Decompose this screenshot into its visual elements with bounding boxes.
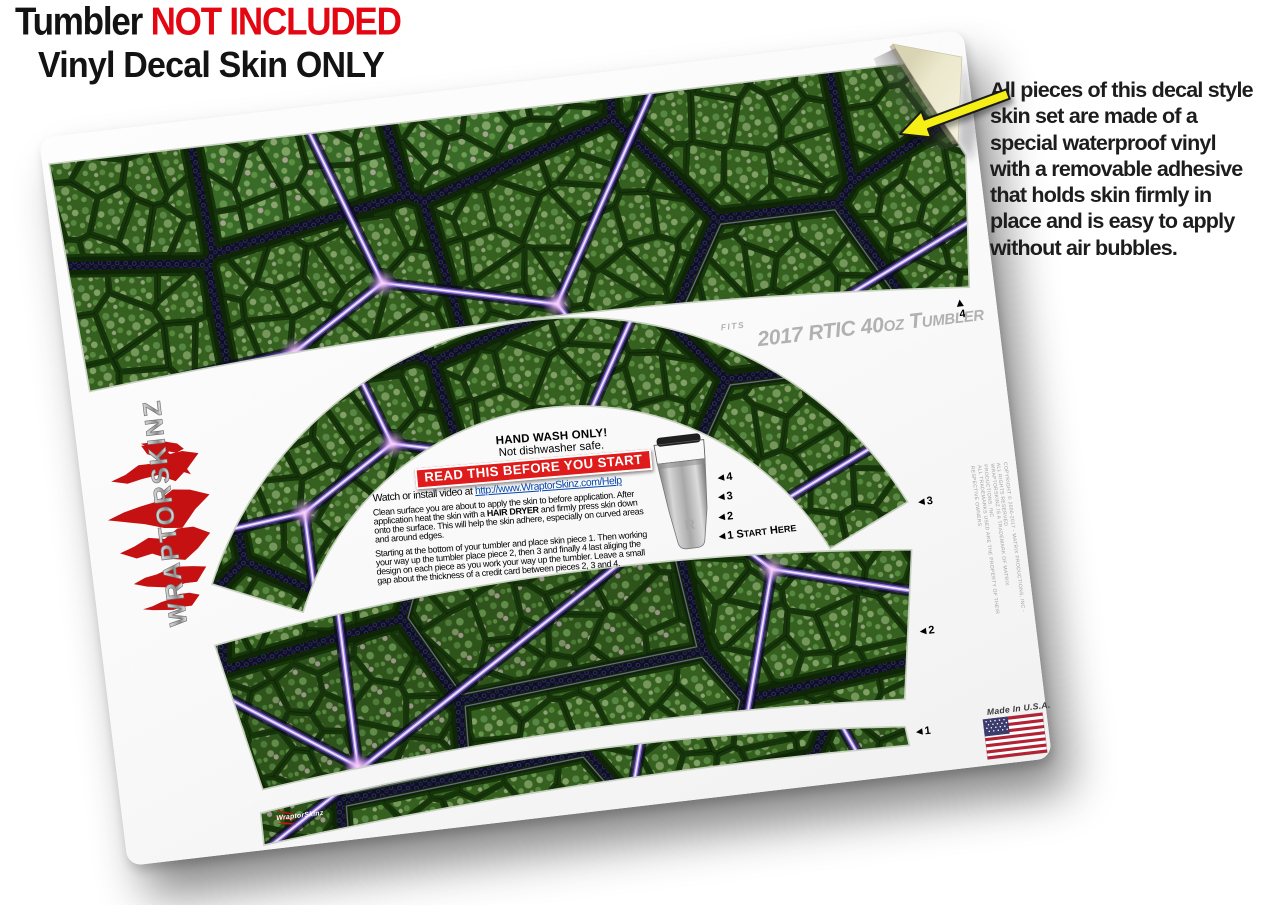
- svg-text:◄4: ◄4: [715, 471, 734, 485]
- svg-text:◄1: ◄1: [913, 725, 931, 739]
- svg-text:◄3: ◄3: [915, 495, 933, 509]
- svg-text:◄2: ◄2: [917, 624, 935, 638]
- svg-text:WRAPTORSKINZ: WRAPTORSKINZ: [138, 398, 193, 628]
- svg-text:◄1 START HERE: ◄1 START HERE: [716, 522, 797, 543]
